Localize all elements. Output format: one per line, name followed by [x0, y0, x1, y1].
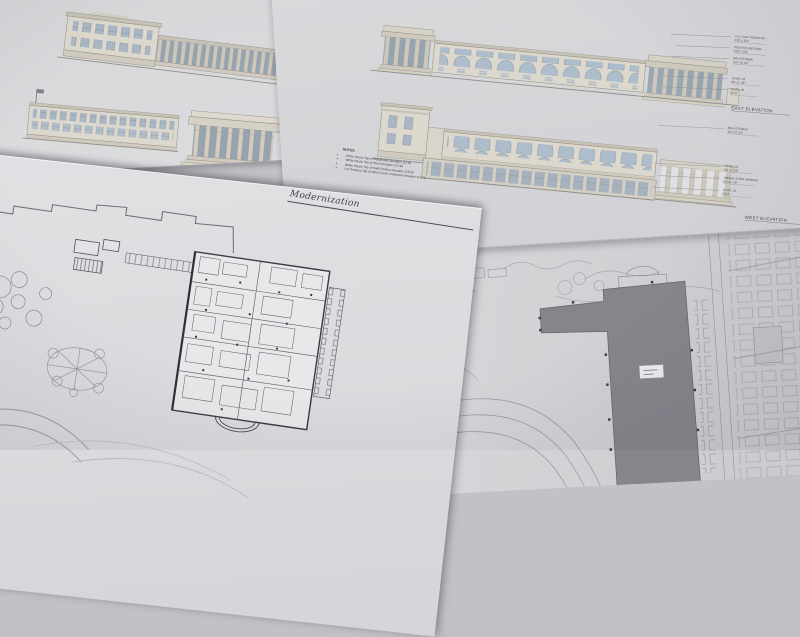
main-building-plan — [170, 252, 329, 442]
west-elevation-caption: WEST ELEVATION — [745, 215, 800, 225]
curved-roads — [441, 354, 612, 496]
svg-text:119'-1 1/8": 119'-1 1/8" — [734, 49, 748, 54]
floor-plan-sheet: Modernization — [0, 150, 482, 637]
level-annotations: T.O. LIGHT MONITOR 130'-1 3/4" PENTHOUSE… — [647, 22, 800, 250]
floor-plan-drawing — [0, 161, 429, 567]
building-footprint — [539, 281, 703, 496]
footprint-label-box — [639, 364, 664, 378]
site-plan-drawing — [432, 219, 800, 495]
east-elevation-caption: EAST ELEVATION — [731, 105, 789, 115]
city-blocks-strip — [708, 225, 800, 495]
svg-text:52'-0": 52'-0" — [722, 191, 730, 196]
svg-text:113'-10 1/2": 113'-10 1/2" — [727, 130, 743, 135]
treasury-elevation-upper — [49, 5, 305, 99]
service-buildings — [71, 235, 119, 275]
level-annotation-group-east-upper: T.O. LIGHT MONITOR 130'-1 3/4" PENTHOUSE… — [669, 29, 767, 66]
flag — [37, 89, 44, 94]
oval-garden — [42, 342, 110, 401]
svg-text:68'-11 1/8": 68'-11 1/8" — [724, 168, 738, 173]
svg-text:68'-11 1/8": 68'-11 1/8" — [731, 80, 745, 85]
svg-text:130'-1 3/4": 130'-1 3/4" — [734, 38, 749, 43]
svg-text:59'-11 1/8": 59'-11 1/8" — [723, 180, 737, 185]
contour-lines — [31, 430, 254, 498]
tree-cluster — [0, 268, 54, 335]
svg-text:EAST ELEVATION: EAST ELEVATION — [731, 105, 773, 113]
svg-text:52'-0": 52'-0" — [730, 91, 738, 96]
level-annotation-group-west-lower: LEVEL 03 68'-11 1/8" GRAND STAIR LANDING… — [653, 158, 760, 198]
level-annotation-group-east-lower: LEVEL 03 68'-11 1/8" LEVEL 02 52'-0" — [663, 71, 760, 97]
svg-text:113'-10 1/2": 113'-10 1/2" — [733, 60, 749, 65]
level-annotation-group-west-upper: BALUSTRADE 113'-10 1/2" — [657, 120, 759, 136]
curved-drive — [0, 400, 93, 463]
photo-of-architectural-drawings: { "colors": { "paper": "#dcdcdf", "paper… — [0, 0, 800, 450]
